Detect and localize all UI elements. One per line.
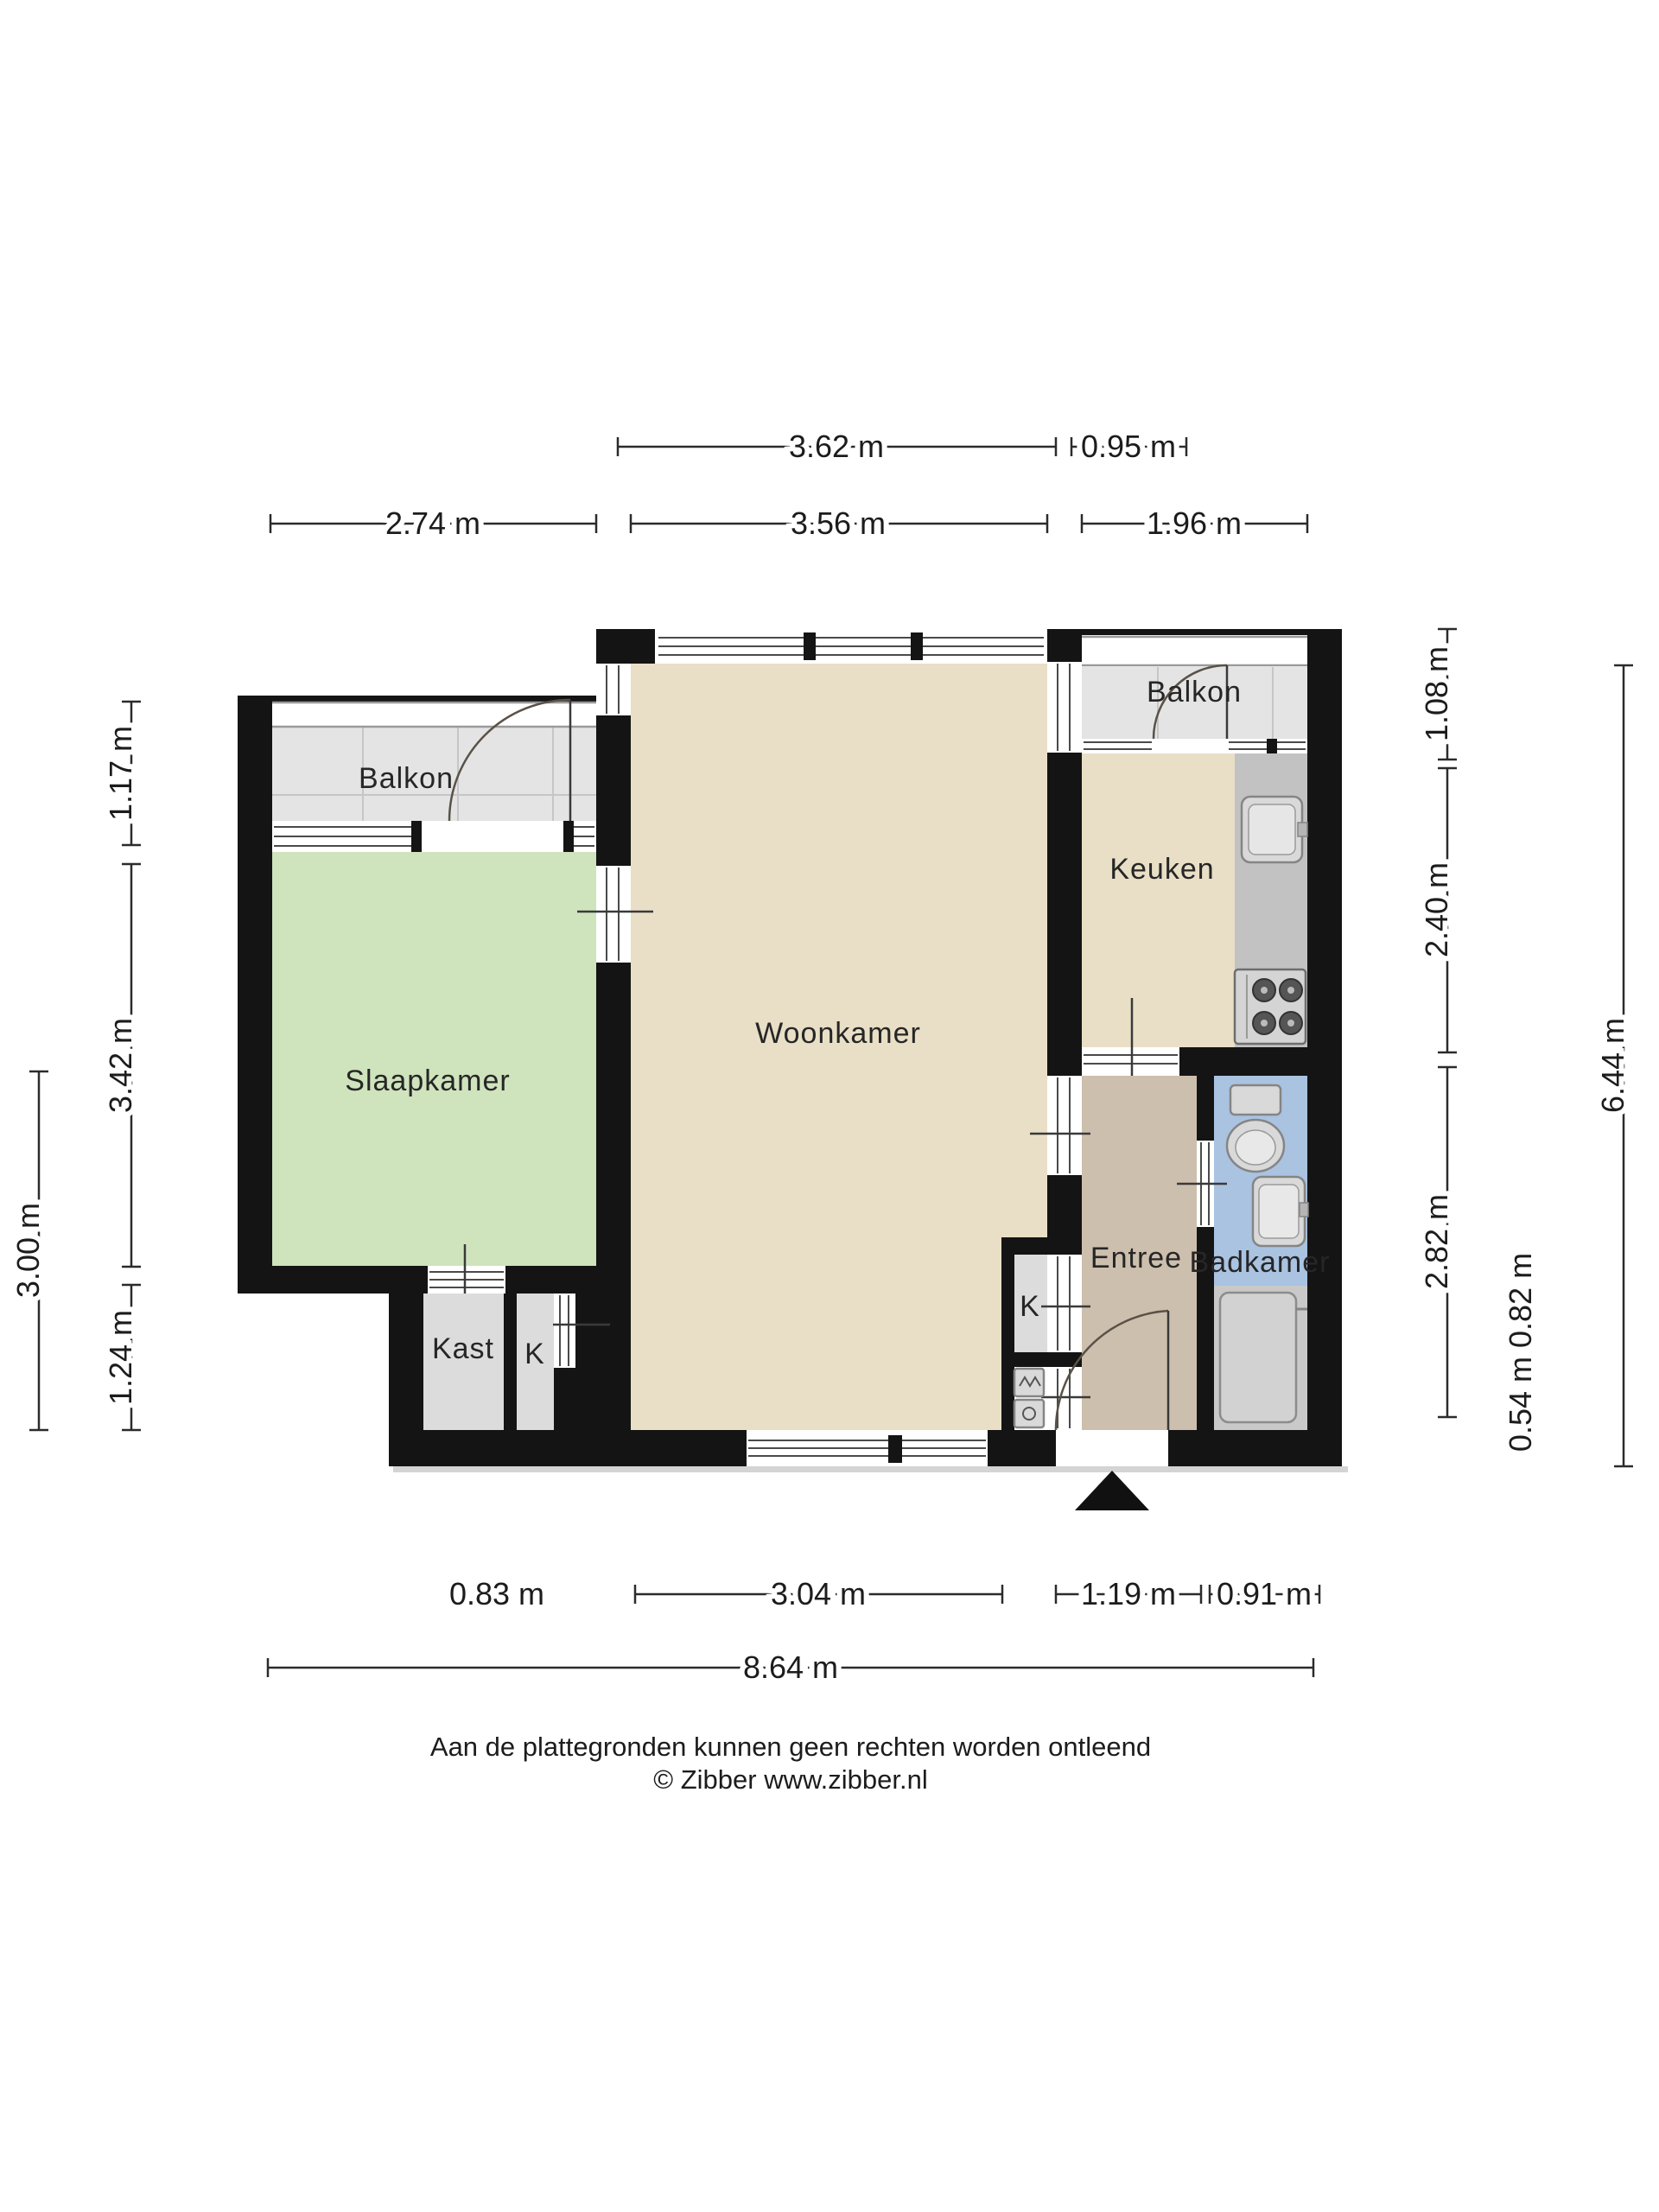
dim-1-17: 1.17 m [103, 702, 141, 845]
window-mullion [911, 632, 923, 660]
kitchen-entry-opening [1082, 1047, 1179, 1076]
dim-1-24: 1.24 m [103, 1285, 141, 1430]
wall-segment [596, 715, 631, 866]
bathroom-sink-basin [1259, 1185, 1299, 1238]
dim-label: 2.40 m [1419, 862, 1454, 957]
dim-label: 3.00 m [10, 1203, 46, 1298]
entrance-arrow-icon [1075, 1471, 1149, 1510]
footer-disclaimer: Aan de plattegronden kunnen geen rechten… [430, 1732, 1151, 1762]
toilet-tank [1230, 1085, 1281, 1115]
label-living: Woonkamer [755, 1017, 921, 1050]
sidelight-window [1047, 662, 1082, 753]
wall-segment [1001, 1237, 1082, 1255]
faucet-icon [1298, 823, 1307, 836]
dim-0-91: 0.91 m [1210, 1576, 1319, 1611]
dim-3-62: 3.62 m [618, 429, 1056, 464]
wall-segment [596, 629, 655, 664]
room-bedroom [272, 852, 596, 1266]
wall-segment [1014, 1352, 1082, 1367]
wall-segment [1082, 629, 1307, 635]
balcony-right-railing [1082, 635, 1307, 667]
window-mullion [563, 821, 574, 852]
dim-label: 3.42 m [103, 1018, 138, 1113]
label-closet-kast: Kast [432, 1332, 494, 1365]
toilet-bowl-inner [1236, 1130, 1275, 1165]
footer: Aan de plattegronden kunnen geen rechten… [430, 1732, 1151, 1795]
dim-2-74: 2.74 m [270, 505, 596, 541]
interior-window [596, 866, 631, 963]
dim-1-19: 1.19 m [1056, 1576, 1201, 1611]
dim-label: 3.62 m [789, 429, 884, 464]
dim-label: 6.44 m [1595, 1018, 1630, 1113]
k2-door-strip [1047, 1255, 1082, 1352]
label-bedroom: Slaapkamer [345, 1065, 510, 1097]
dim-2-82: 2.82 m [1419, 1067, 1457, 1417]
label-closet-k2: K [1020, 1290, 1040, 1323]
dim-0-83: 0.83 m [449, 1576, 544, 1611]
wall-segment [596, 963, 631, 1294]
kitchen-sink-basin [1249, 804, 1295, 855]
dim-label: 1.24 m [103, 1310, 138, 1405]
dim-label: 0.95 m [1081, 429, 1176, 464]
dim-label: 1.17 m [103, 726, 138, 821]
shower-tray-icon [1220, 1293, 1296, 1422]
footer-copyright: © Zibber www.zibber.nl [653, 1764, 927, 1795]
label-closet-k1: K [524, 1338, 545, 1370]
window-mullion [804, 632, 816, 660]
entry-door-strip [1047, 1076, 1082, 1175]
wall-segment [1179, 1047, 1342, 1076]
k1-door-strip [554, 1294, 575, 1368]
wall-segment [504, 1294, 517, 1430]
wall-segment [1197, 1076, 1214, 1141]
burner-center [1261, 1020, 1268, 1027]
dim-label: 1.19 m [1081, 1576, 1176, 1611]
entrance-opening [1056, 1430, 1168, 1466]
window-mullion [1267, 739, 1277, 753]
label-balcony-left: Balkon [359, 762, 454, 795]
wall-segment [1047, 629, 1082, 662]
dim-1-96: 1.96 m [1082, 505, 1307, 541]
meter-door-strip [1047, 1367, 1082, 1430]
sidelight-window [596, 664, 631, 715]
dim-label: 2.74 m [385, 505, 480, 541]
window-mullion [411, 821, 422, 852]
wall-segment [389, 1430, 747, 1466]
dim-3-00: 3.00 m [10, 1071, 48, 1430]
burner-center [1287, 987, 1294, 994]
dim-label: 0.91 m [1217, 1576, 1312, 1611]
wall-segment [238, 696, 272, 1294]
wall-segment [1047, 753, 1082, 1076]
dim-label: 3.56 m [791, 505, 886, 541]
label-bathroom: Badkamer [1190, 1246, 1331, 1279]
wall-segment [1047, 1175, 1082, 1237]
wall-segment [272, 696, 596, 702]
label-balcony-right: Balkon [1147, 676, 1242, 709]
building-shadow [393, 1466, 1348, 1472]
wall-segment [238, 1266, 428, 1294]
floor-plan-svg: Balkon Slaapkamer Woonkamer Balkon Keuke… [0, 0, 1659, 2212]
dim-label: 1.08 m [1419, 646, 1454, 741]
wall-segment [988, 1430, 1056, 1466]
dim-6-44: 6.44 m [1595, 665, 1633, 1466]
burner-center [1261, 987, 1268, 994]
dim-small-right: 0.54 m 0.82 m [1503, 1253, 1538, 1452]
balcony-left-railing [272, 702, 596, 728]
dim-3-04: 3.04 m [635, 1576, 1002, 1611]
wall-segment [575, 1294, 631, 1430]
dim-2-40: 2.40 m [1419, 768, 1457, 1052]
wall-segment [554, 1368, 575, 1430]
faucet-icon [1300, 1203, 1308, 1217]
dim-0-95: 0.95 m [1071, 429, 1186, 464]
dim-1-08: 1.08 m [1419, 629, 1457, 760]
label-entry: Entree [1090, 1242, 1182, 1274]
window-mullion [888, 1435, 902, 1463]
dim-label: 3.04 m [771, 1576, 866, 1611]
meter-box-icon [1014, 1400, 1044, 1427]
dim-3-56: 3.56 m [631, 505, 1047, 541]
dim-8-64: 8.64 m [268, 1649, 1313, 1685]
wall-segment [1001, 1255, 1014, 1430]
dim-label: 8.64 m [743, 1649, 838, 1685]
dim-3-42: 3.42 m [103, 864, 141, 1267]
dim-label: 2.82 m [1419, 1194, 1454, 1289]
burner-center [1287, 1020, 1294, 1027]
wall-segment [1168, 1430, 1342, 1466]
label-kitchen: Keuken [1109, 853, 1214, 886]
wall-segment [505, 1266, 601, 1294]
meter-box-icon [1014, 1369, 1044, 1396]
dim-label: 1.96 m [1147, 505, 1242, 541]
